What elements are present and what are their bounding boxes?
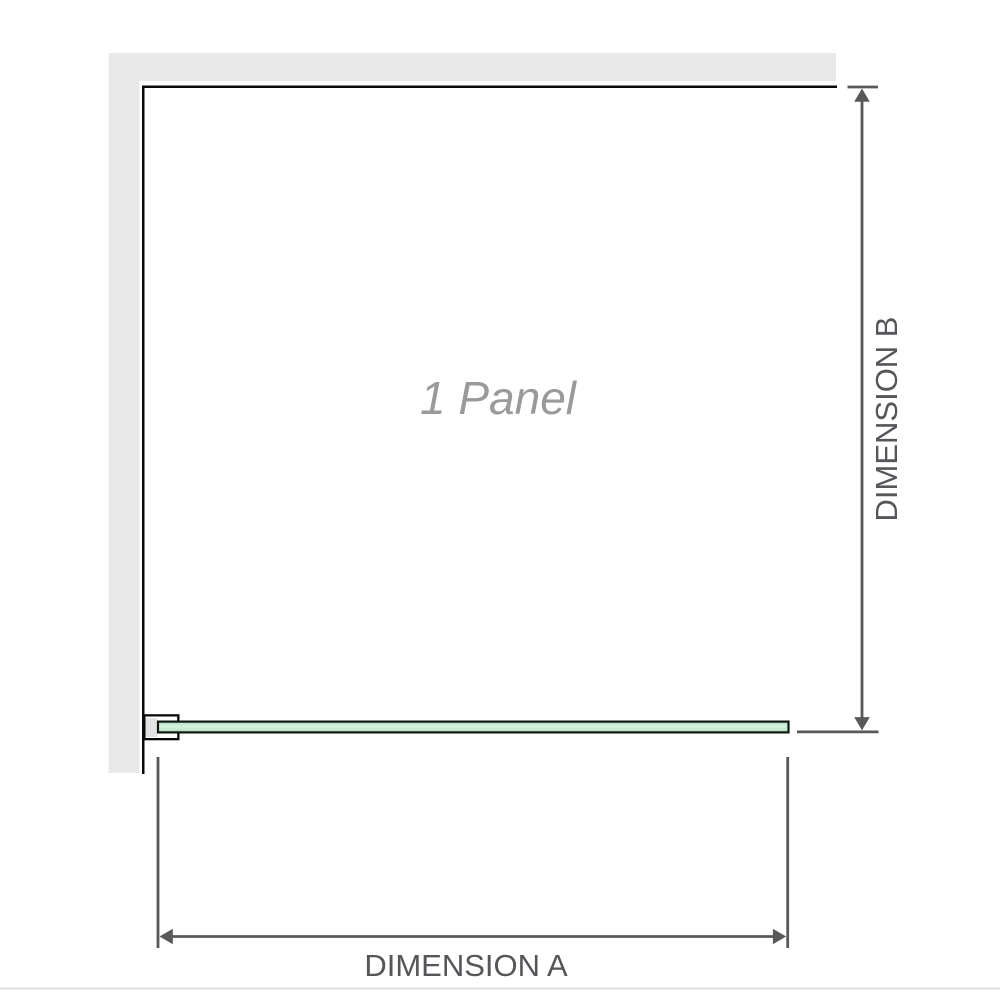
svg-text:DIMENSION B: DIMENSION B — [869, 317, 904, 522]
svg-text:DIMENSION A: DIMENSION A — [364, 948, 568, 983]
svg-text:1 Panel: 1 Panel — [420, 372, 578, 424]
